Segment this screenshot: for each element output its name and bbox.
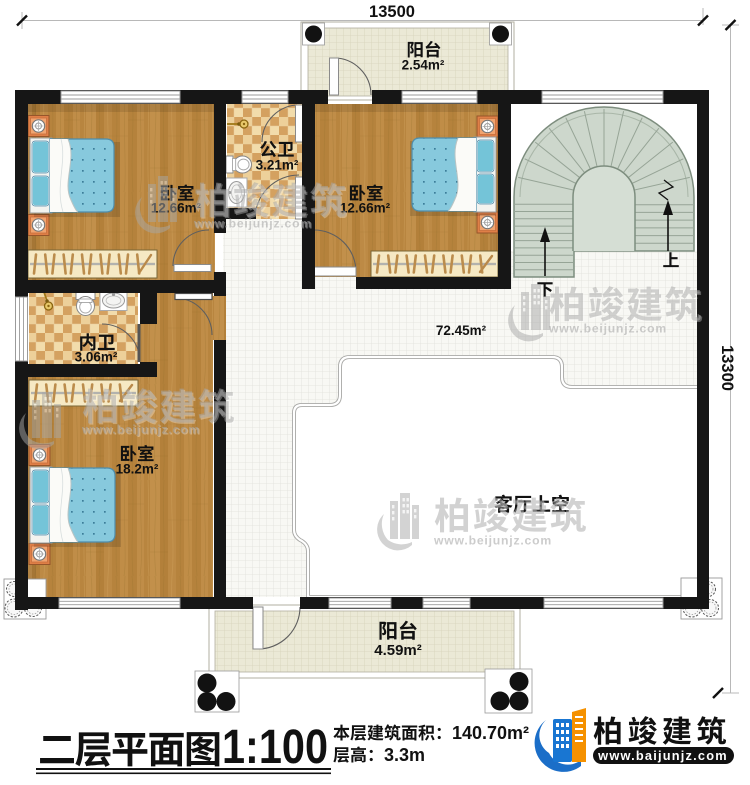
svg-text:13300: 13300 xyxy=(718,345,736,391)
svg-text:www.beijunjz.com: www.beijunjz.com xyxy=(433,534,552,548)
svg-text:3.3m: 3.3m xyxy=(384,745,425,765)
svg-text:140.70m²: 140.70m² xyxy=(452,723,529,743)
svg-text:www.beijunjz.com: www.beijunjz.com xyxy=(193,217,312,231)
svg-text:2.54m²: 2.54m² xyxy=(402,58,445,73)
svg-text:72.45m²: 72.45m² xyxy=(436,323,487,338)
svg-text:12.66m²: 12.66m² xyxy=(340,201,391,216)
svg-text:18.2m²: 18.2m² xyxy=(116,462,159,477)
svg-text:13500: 13500 xyxy=(369,3,415,21)
svg-text:1:100: 1:100 xyxy=(222,721,328,774)
svg-text:3.06m²: 3.06m² xyxy=(75,350,118,365)
svg-text:www.beijunjz.com: www.beijunjz.com xyxy=(548,322,667,336)
svg-text:www.beijunjz.com: www.beijunjz.com xyxy=(81,423,200,437)
svg-text:www.baijunjz.com: www.baijunjz.com xyxy=(597,748,728,763)
svg-text:3.21m²: 3.21m² xyxy=(256,158,299,173)
svg-text:4.59m²: 4.59m² xyxy=(374,642,422,659)
